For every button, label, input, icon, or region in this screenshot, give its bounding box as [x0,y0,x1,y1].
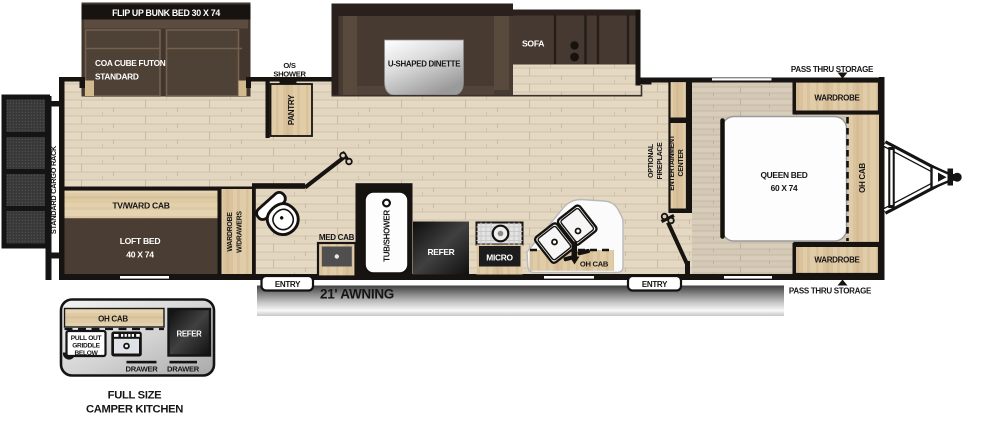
svg-text:OH CAB: OH CAB [858,163,867,193]
svg-text:ENTERTAINMENT: ENTERTAINMENT [669,134,676,190]
svg-text:OPTIONAL: OPTIONAL [648,143,655,178]
svg-text:DRAWER: DRAWER [167,365,200,374]
svg-text:SHOWER: SHOWER [273,69,306,78]
svg-text:OH CAB: OH CAB [98,315,128,324]
svg-text:SOFA: SOFA [522,39,544,49]
svg-text:CAMPER KITCHEN: CAMPER KITCHEN [86,404,183,416]
svg-text:FLIP UP BUNK BED 30 X 74: FLIP UP BUNK BED 30 X 74 [112,8,220,18]
svg-text:21' AWNING: 21' AWNING [320,287,394,302]
svg-text:WARDROBE: WARDROBE [814,256,860,265]
svg-text:LOFT BED: LOFT BED [120,236,161,246]
svg-text:STANDARD CARGO RACK: STANDARD CARGO RACK [49,145,58,234]
svg-text:COA CUBE FUTON: COA CUBE FUTON [95,58,166,68]
svg-text:FIREPLACE: FIREPLACE [657,142,664,180]
svg-text:ENTRY: ENTRY [275,280,301,289]
svg-text:WARDROBE: WARDROBE [814,94,860,103]
svg-text:FULL SIZE: FULL SIZE [108,390,162,402]
svg-text:W/DRAWERS: W/DRAWERS [237,211,244,253]
svg-text:40 X 74: 40 X 74 [126,250,154,260]
svg-text:PASS THRU STORAGE: PASS THRU STORAGE [789,287,872,296]
svg-text:DRAWER: DRAWER [126,365,159,374]
svg-text:ENTRY: ENTRY [642,280,668,289]
svg-text:TV/WARD CAB: TV/WARD CAB [112,201,169,211]
svg-text:TUB/SHOWER: TUB/SHOWER [383,210,392,262]
svg-text:PULL OUT: PULL OUT [71,335,102,342]
svg-text:GRIDDLE: GRIDDLE [72,343,100,350]
svg-text:REFER: REFER [428,247,455,257]
svg-text:60 X 74: 60 X 74 [771,183,798,193]
svg-text:MED CAB: MED CAB [319,233,355,242]
svg-text:OH CAB: OH CAB [580,260,609,269]
svg-text:PANTRY: PANTRY [287,94,296,125]
svg-text:U-SHAPED DINETTE: U-SHAPED DINETTE [388,60,460,69]
svg-text:PASS THRU STORAGE: PASS THRU STORAGE [791,65,874,74]
svg-text:MICRO: MICRO [486,253,513,263]
svg-text:WARDROBE: WARDROBE [227,212,234,252]
svg-text:REFER: REFER [177,330,203,339]
svg-text:QUEEN BED: QUEEN BED [760,170,807,180]
svg-text:STANDARD: STANDARD [95,72,139,82]
svg-text:BELOW: BELOW [74,350,98,357]
svg-text:CENTER: CENTER [678,149,685,176]
